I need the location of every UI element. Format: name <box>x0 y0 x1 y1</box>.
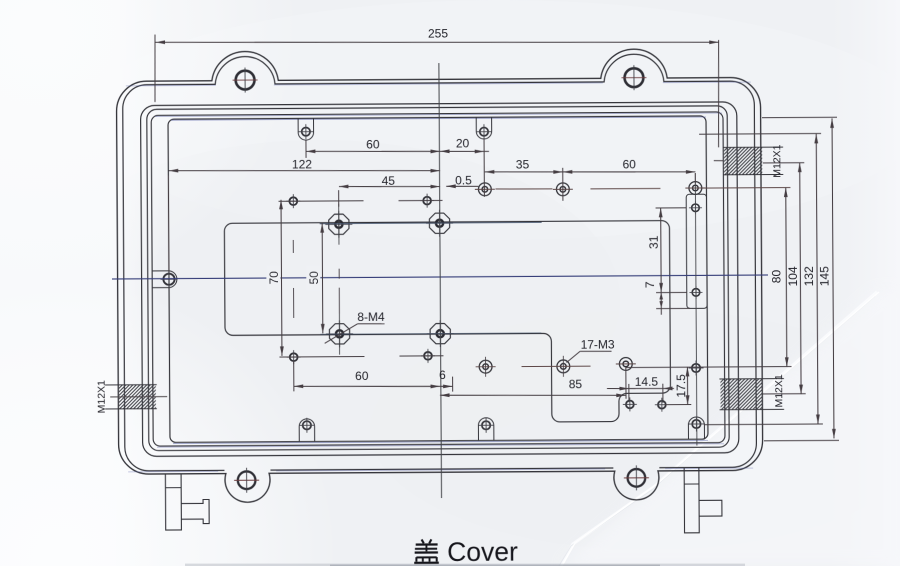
svg-text:50: 50 <box>307 271 321 285</box>
svg-text:8-M4: 8-M4 <box>357 310 385 324</box>
svg-text:60: 60 <box>355 369 369 383</box>
svg-text:70: 70 <box>267 271 281 285</box>
svg-text:Cover: Cover <box>447 537 518 566</box>
svg-text:M12X1: M12X1 <box>773 374 785 408</box>
svg-text:35: 35 <box>516 157 530 171</box>
svg-text:20: 20 <box>456 136 470 150</box>
svg-text:M12X1: M12X1 <box>771 144 783 178</box>
svg-text:17.5: 17.5 <box>674 374 688 398</box>
svg-text:6: 6 <box>439 368 446 382</box>
svg-text:7: 7 <box>643 281 657 288</box>
svg-text:104: 104 <box>786 266 800 286</box>
svg-text:80: 80 <box>770 269 784 283</box>
svg-text:17-M3: 17-M3 <box>581 337 615 351</box>
svg-text:255: 255 <box>428 26 448 40</box>
svg-text:85: 85 <box>569 377 583 391</box>
svg-text:145: 145 <box>818 266 832 286</box>
svg-text:60: 60 <box>622 157 636 171</box>
svg-text:14.5: 14.5 <box>635 375 659 389</box>
svg-text:122: 122 <box>292 157 312 171</box>
svg-text:31: 31 <box>647 235 661 249</box>
svg-text:0.5: 0.5 <box>455 173 472 187</box>
svg-text:132: 132 <box>802 266 816 286</box>
svg-text:60: 60 <box>366 137 380 151</box>
svg-text:45: 45 <box>382 174 396 188</box>
svg-text:M12X1: M12X1 <box>96 380 108 414</box>
